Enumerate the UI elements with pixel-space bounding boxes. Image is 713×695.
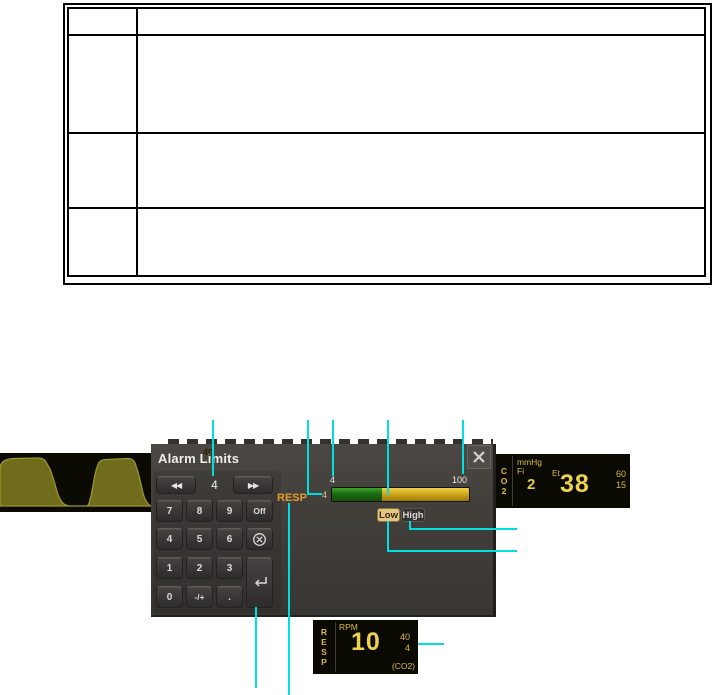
callout-line-enter-key [255,607,257,688]
co2-letter: 2 [502,486,507,496]
resp-side-label: R E S P [313,620,335,674]
co2-limits: 60 15 [604,469,626,491]
callout-line-scale-min [332,420,334,476]
limit-slider-bar[interactable] [331,487,470,502]
slider-green-segment [332,488,382,501]
increment-button[interactable]: ▶▶ [233,476,273,494]
table-cell [138,9,704,34]
et-value: 38 [560,470,590,499]
key-3[interactable]: 3 [216,557,243,579]
resp-limits: 40 4 [388,632,410,654]
high-tab-button[interactable]: High [401,508,425,522]
double-right-chevron-icon: ▶▶ [248,481,258,490]
callout-line-resp-limits [418,643,444,645]
dialog-title: Alarm Limits [158,451,239,466]
key-clear[interactable] [246,528,273,550]
fi-value: 2 [527,476,535,493]
key-8[interactable]: 8 [186,500,213,522]
resp-parameter-panel[interactable]: R E S P RPM 10 40 4 (CO2) [313,620,418,674]
resp-letter: P [321,657,327,667]
low-tab-button[interactable]: Low [377,508,400,522]
callout-line-low-value-horizontal [307,493,322,495]
key-0[interactable]: 0 [156,586,183,608]
key-6[interactable]: 6 [216,528,243,550]
key-7[interactable]: 7 [156,500,183,522]
key-4[interactable]: 4 [156,528,183,550]
table-cell [69,209,138,275]
enter-arrow-icon [251,576,268,589]
table-cell [69,134,138,207]
spec-table [67,7,706,277]
table-cell [138,134,704,207]
table-row [69,209,704,275]
key-decimal[interactable]: . [216,586,243,608]
co2-limit-high: 60 [604,469,626,480]
callout-line-resp-label [288,503,290,695]
et-label: Et [552,468,560,478]
key-off[interactable]: Off [246,500,273,522]
co2-limit-low: 15 [604,480,626,491]
key-9[interactable]: 9 [216,500,243,522]
callout-line-low-vertical [387,521,389,552]
slider-yellow-segment [382,488,469,501]
figure-border [63,3,712,285]
resp-limit-high: 40 [388,632,410,643]
table-row [69,36,704,134]
resp-value: 10 [351,628,381,657]
panel-divider [335,622,336,672]
table-row [69,134,704,209]
co2-waveform-panel [0,453,151,512]
manual-page: Alarm Limits ◀◀ 4 ▶▶ 7 8 9 Off 4 5 6 [0,0,713,695]
callout-line-low-value-vertical [307,420,309,495]
co2-parameter-panel[interactable]: C O 2 mmHg Fi Et 2 38 60 15 [496,454,630,508]
key-2[interactable]: 2 [186,557,213,579]
resp-source-label: (CO2) [375,661,415,671]
resp-limit-low: 4 [388,643,410,654]
callout-line-high-horizontal [409,528,517,530]
key-5[interactable]: 5 [186,528,213,550]
key-enter[interactable] [246,557,273,608]
close-button[interactable] [467,445,491,469]
key-plus-minus[interactable]: -/+ [186,586,213,608]
callout-line-marker [387,420,389,495]
double-left-chevron-icon: ◀◀ [171,481,181,490]
co2-letter: C [501,466,507,476]
table-row [69,9,704,36]
table-cell [69,9,138,34]
slider-scale-max: 100 [452,475,472,485]
callout-line-low-horizontal [387,550,517,552]
key-1[interactable]: 1 [156,557,183,579]
alarm-limits-dialog: Alarm Limits ◀◀ 4 ▶▶ 7 8 9 Off 4 5 6 [151,444,496,617]
callout-line-spinner-value [212,420,214,476]
fi-label: Fi [517,466,524,476]
panel-divider [512,456,513,506]
circled-x-icon [252,532,267,547]
callout-line-scale-max [462,420,464,474]
slider-scale-min: 4 [311,475,335,485]
close-icon [472,450,486,464]
table-cell [69,36,138,132]
co2-letter: O [501,476,508,486]
table-cell [138,36,704,132]
limit-value-display: 4 [196,476,233,494]
co2-waveform [0,453,151,512]
table-cell [138,209,704,275]
resp-letter: E [321,637,327,647]
resp-letter: S [321,647,327,657]
resp-letter: R [321,627,327,637]
decrement-button[interactable]: ◀◀ [156,476,196,494]
co2-side-label: C O 2 [496,454,512,508]
